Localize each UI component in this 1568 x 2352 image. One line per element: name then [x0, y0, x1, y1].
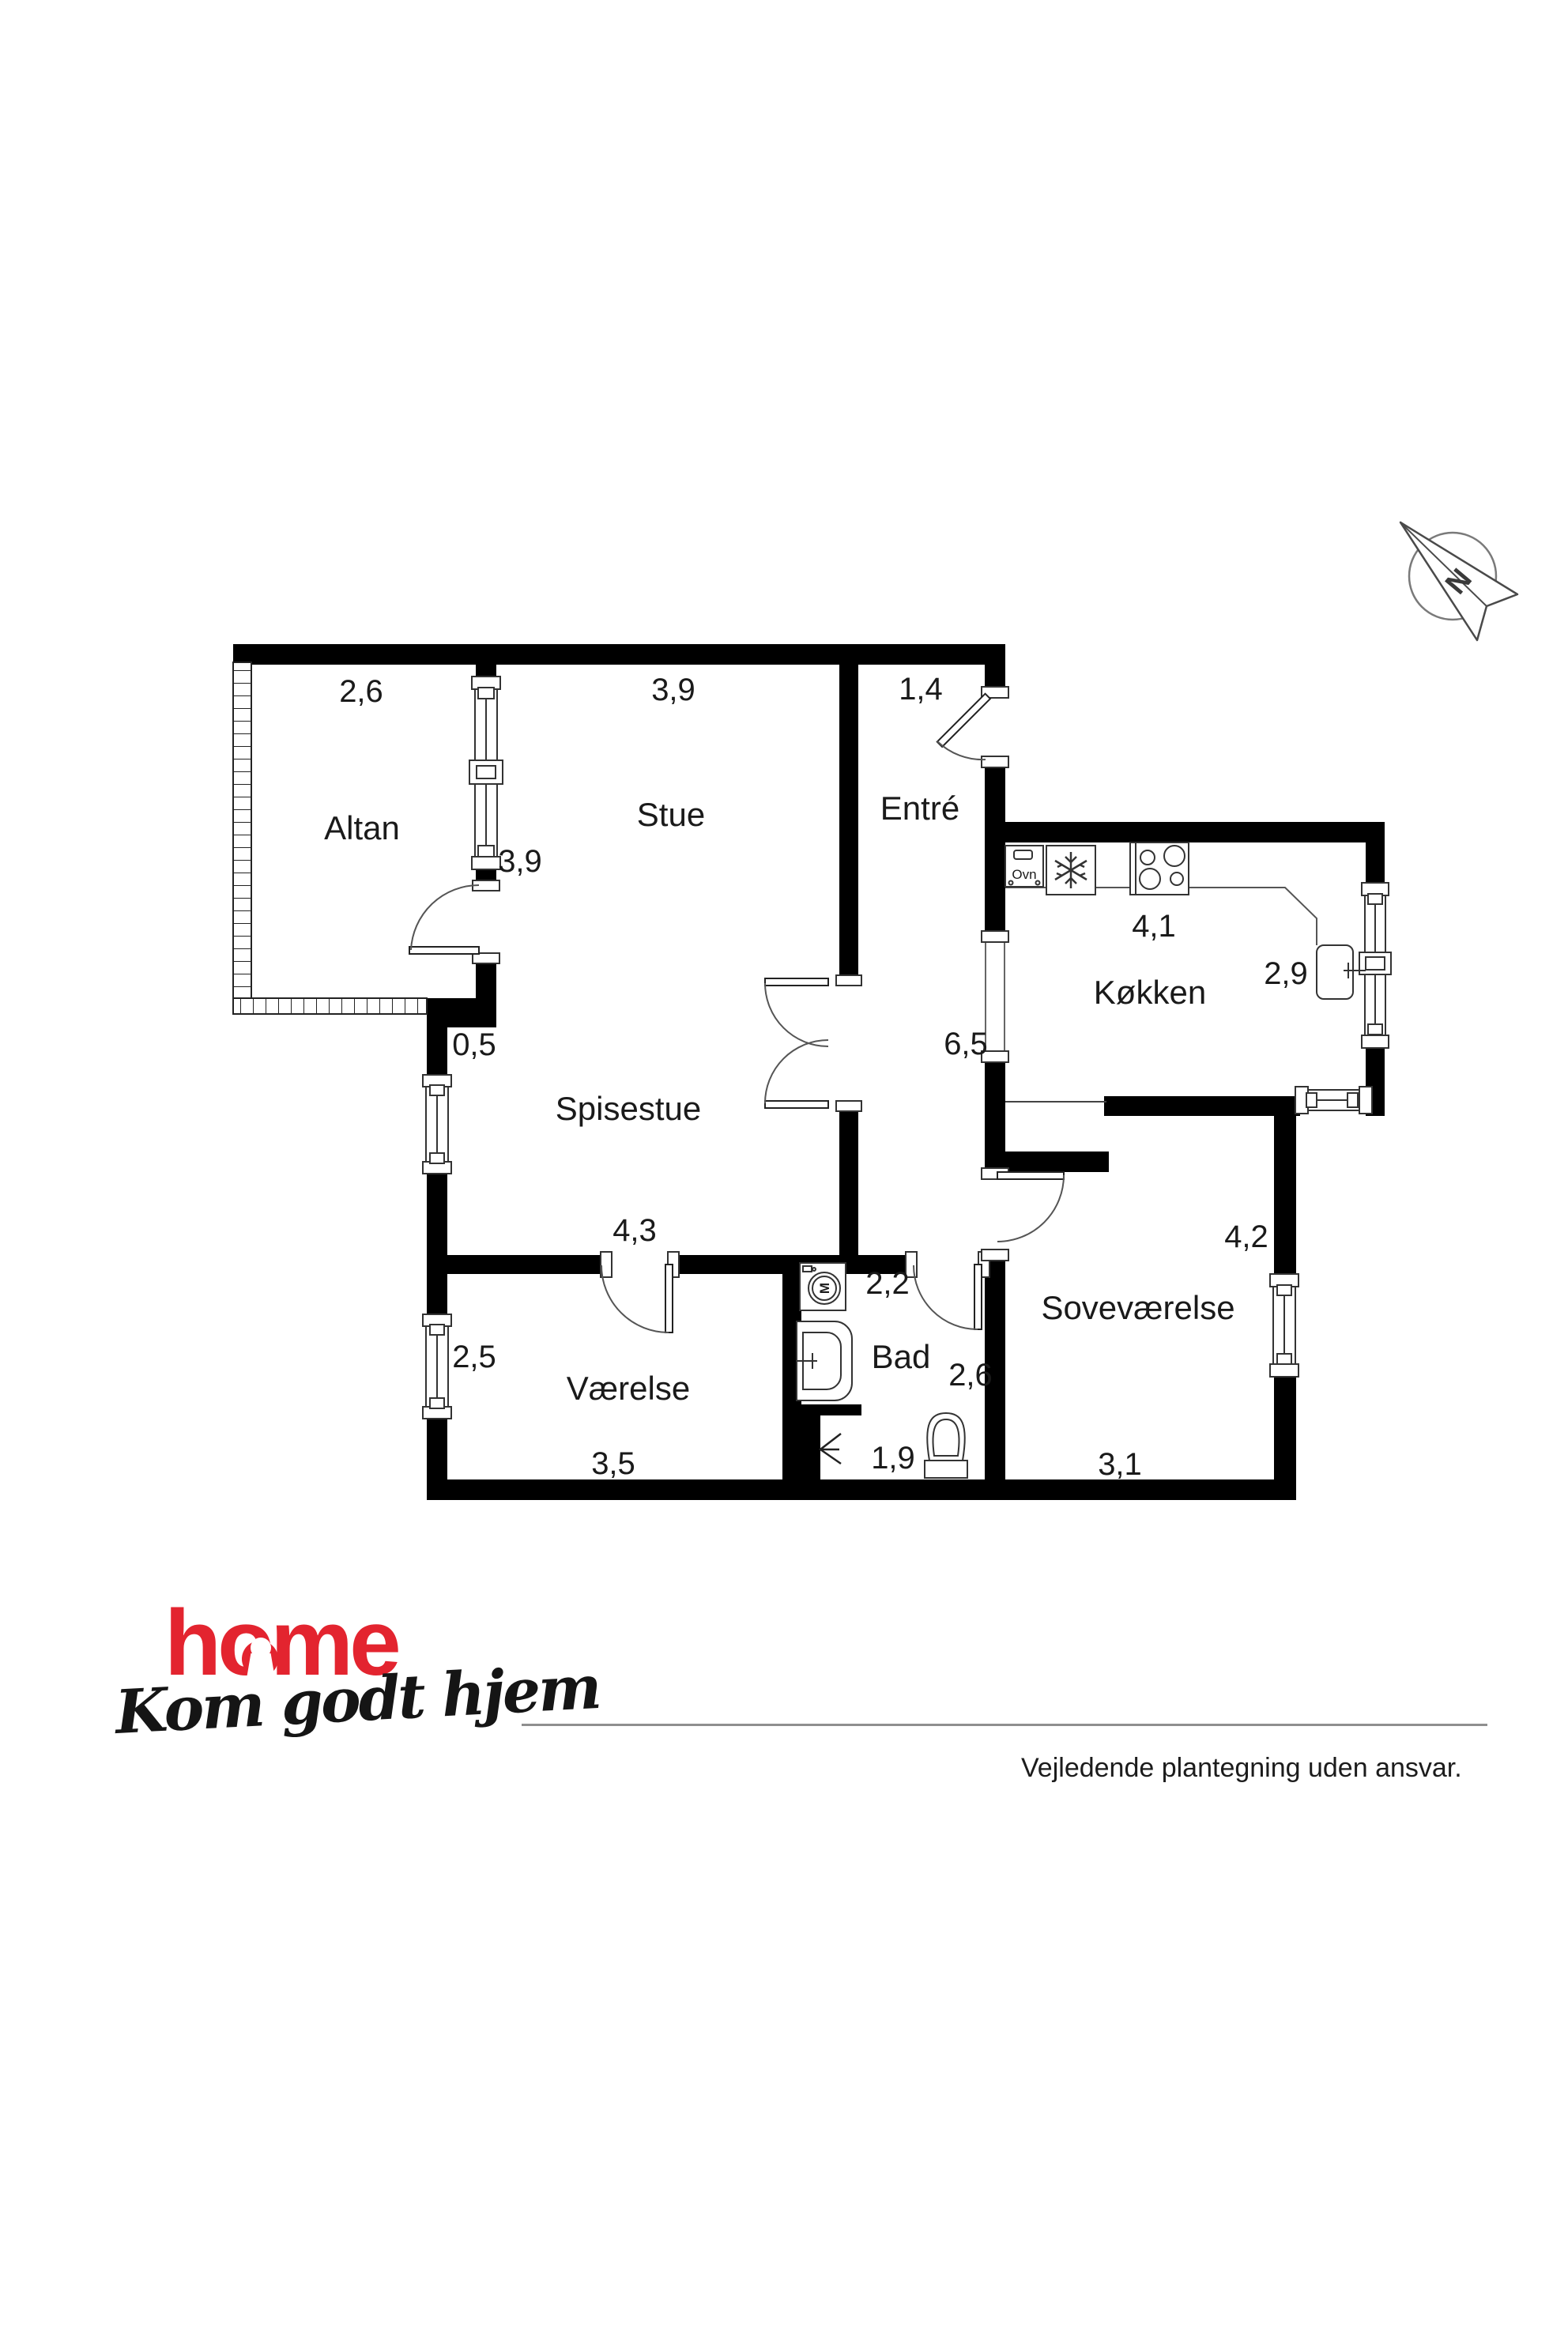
dim-kokken-top: 4,1	[1132, 909, 1176, 944]
double-door-icon	[765, 975, 861, 1111]
entrance-door-icon	[937, 687, 1008, 767]
room-label-altan: Altan	[324, 809, 400, 846]
washer-label: M	[817, 1283, 832, 1294]
room-label-vaerelse: Værelse	[567, 1370, 690, 1407]
sovevaerelse-door-icon	[982, 1168, 1064, 1261]
dim-stue-top: 3,9	[651, 673, 695, 707]
room-labels: Altan Stue Entré Køkken Spisestue Værels…	[324, 790, 1234, 1407]
dim-kokken-east: 2,9	[1264, 956, 1308, 991]
oven-label: Ovn	[1012, 867, 1036, 882]
dim-vaerelse-bottom: 3,5	[591, 1446, 635, 1481]
room-label-kokken: Køkken	[1094, 974, 1206, 1011]
cooktop-icon	[1130, 842, 1189, 895]
dim-sovevaerelse-east: 4,2	[1224, 1219, 1268, 1254]
bad-door-icon	[906, 1252, 989, 1329]
dim-spisestue: 4,3	[612, 1213, 657, 1248]
vaerelse-door-icon	[601, 1252, 679, 1332]
page-canvas: M Altan Stue Entré Køkken Spisestue Være…	[0, 0, 1568, 2352]
drain-arrow-icon	[820, 1434, 841, 1464]
washbasin-icon	[797, 1321, 852, 1400]
dim-bad-shower: 1,9	[871, 1441, 915, 1476]
room-label-entre: Entré	[880, 790, 959, 827]
floor-plan: M Altan Stue Entré Køkken Spisestue Være…	[0, 0, 1568, 2352]
disclaimer-text: Vejledende plantegning uden ansvar.	[1021, 1753, 1462, 1784]
dim-step: 0,5	[452, 1027, 496, 1062]
room-label-stue: Stue	[637, 796, 705, 833]
room-label-spisestue: Spisestue	[556, 1090, 701, 1127]
dim-entre-top: 1,4	[899, 672, 943, 707]
room-label-sovevaerelse: Soveværelse	[1041, 1289, 1234, 1326]
dim-bad-east: 2,6	[948, 1358, 993, 1393]
toilet-icon	[925, 1413, 967, 1478]
kitchen-sink-icon	[1317, 945, 1366, 999]
dim-bad-top: 2,2	[865, 1266, 910, 1301]
room-label-bad: Bad	[872, 1338, 931, 1375]
balcony-door-icon	[409, 880, 499, 963]
windows	[423, 677, 1391, 1419]
dim-vaerelse-west: 2,5	[452, 1340, 496, 1374]
footer-divider	[522, 1724, 1487, 1726]
north-compass-icon: N	[1400, 522, 1517, 640]
dim-sovevaerelse-bottom: 3,1	[1098, 1447, 1142, 1482]
washing-machine-icon: M	[800, 1263, 846, 1310]
freezer-icon	[1046, 846, 1095, 895]
dim-altan-top: 2,6	[339, 674, 383, 709]
dim-corridor: 6,5	[944, 1027, 988, 1061]
dim-stue-west: 3,9	[498, 844, 542, 879]
